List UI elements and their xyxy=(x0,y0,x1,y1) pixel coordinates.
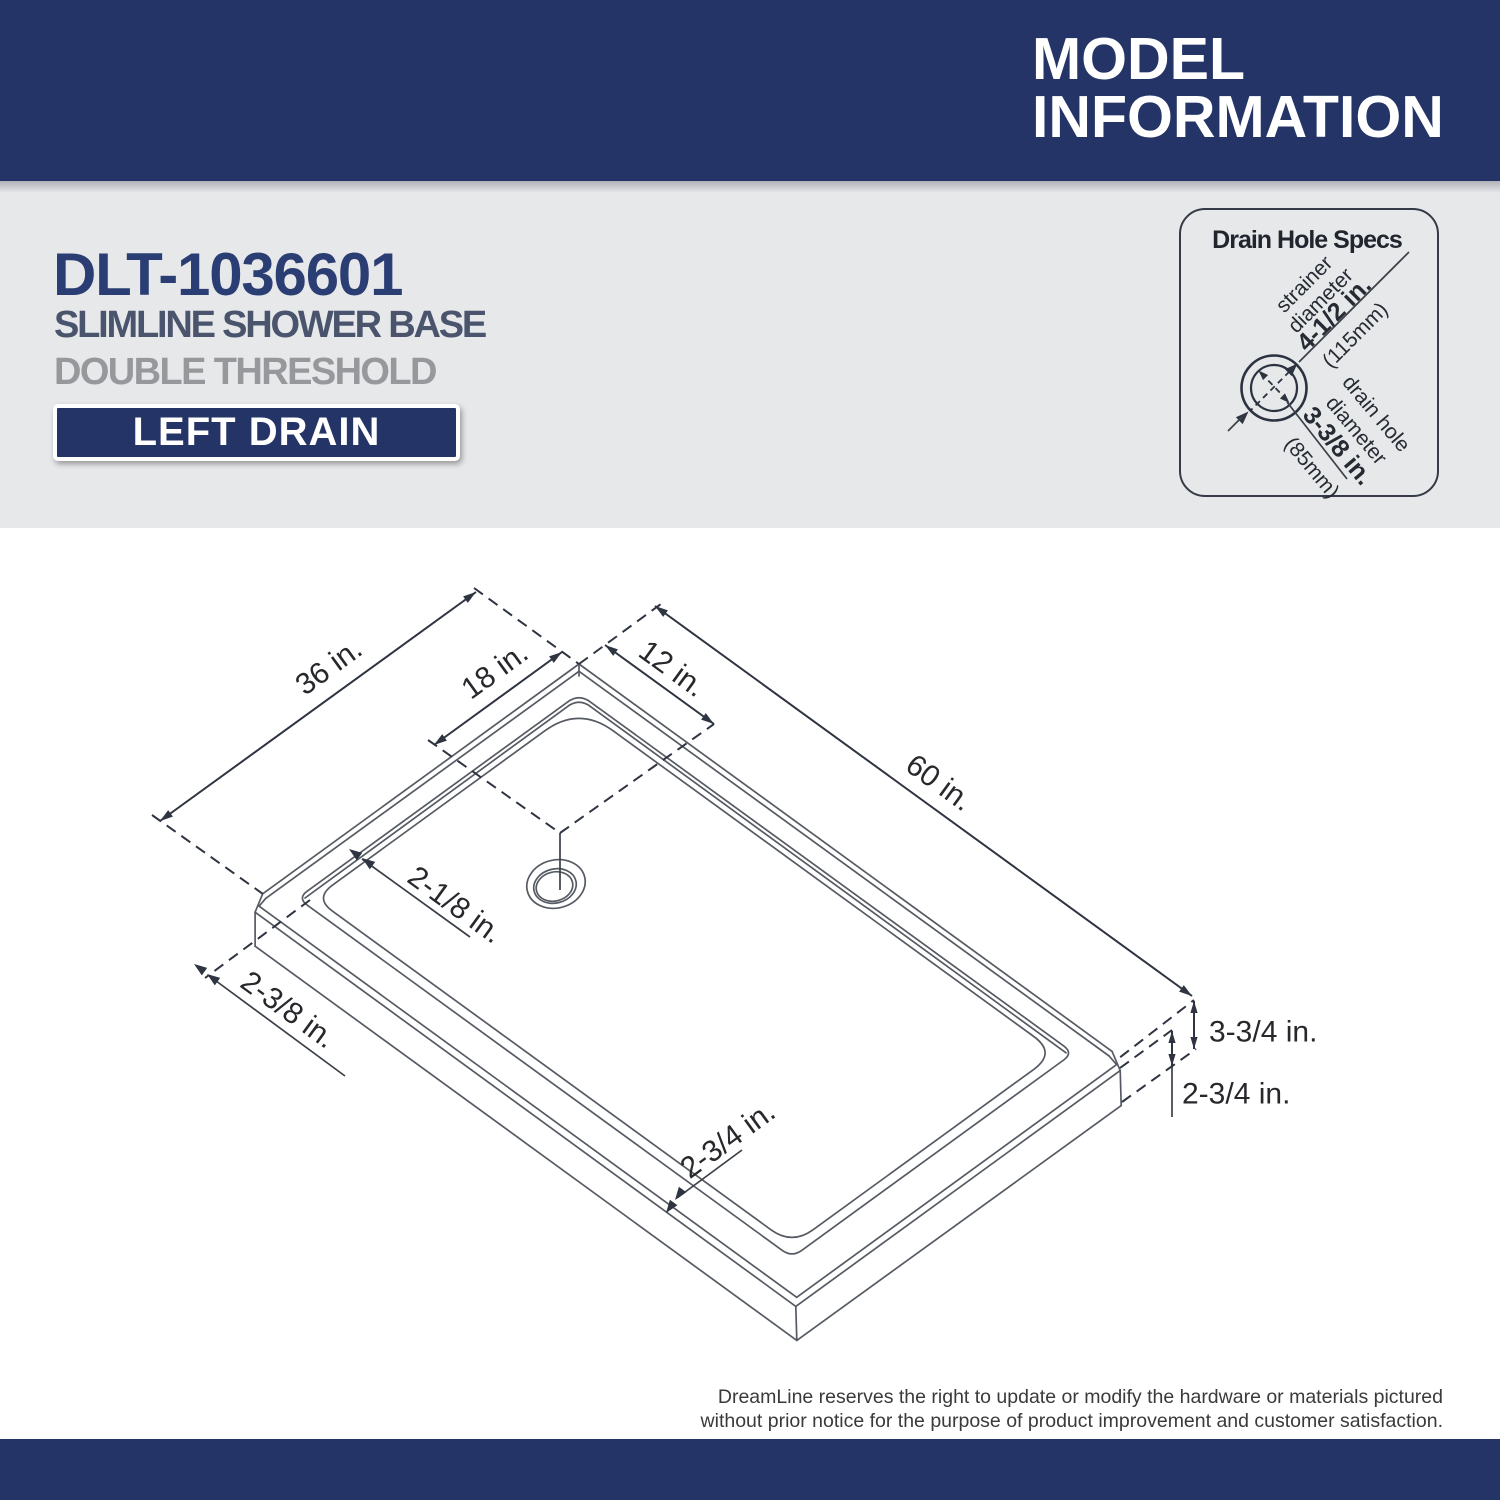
svg-text:2-3/4 in.: 2-3/4 in. xyxy=(1182,1078,1290,1111)
svg-text:36 in.: 36 in. xyxy=(290,632,369,702)
svg-text:2-3/4 in.: 2-3/4 in. xyxy=(674,1095,781,1185)
svg-text:60 in.: 60 in. xyxy=(900,748,979,818)
svg-text:3-3/4 in.: 3-3/4 in. xyxy=(1209,1016,1317,1049)
svg-text:18 in.: 18 in. xyxy=(456,636,535,706)
svg-text:2-1/8 in.: 2-1/8 in. xyxy=(401,860,508,950)
svg-text:2-3/8 in.: 2-3/8 in. xyxy=(234,965,341,1055)
